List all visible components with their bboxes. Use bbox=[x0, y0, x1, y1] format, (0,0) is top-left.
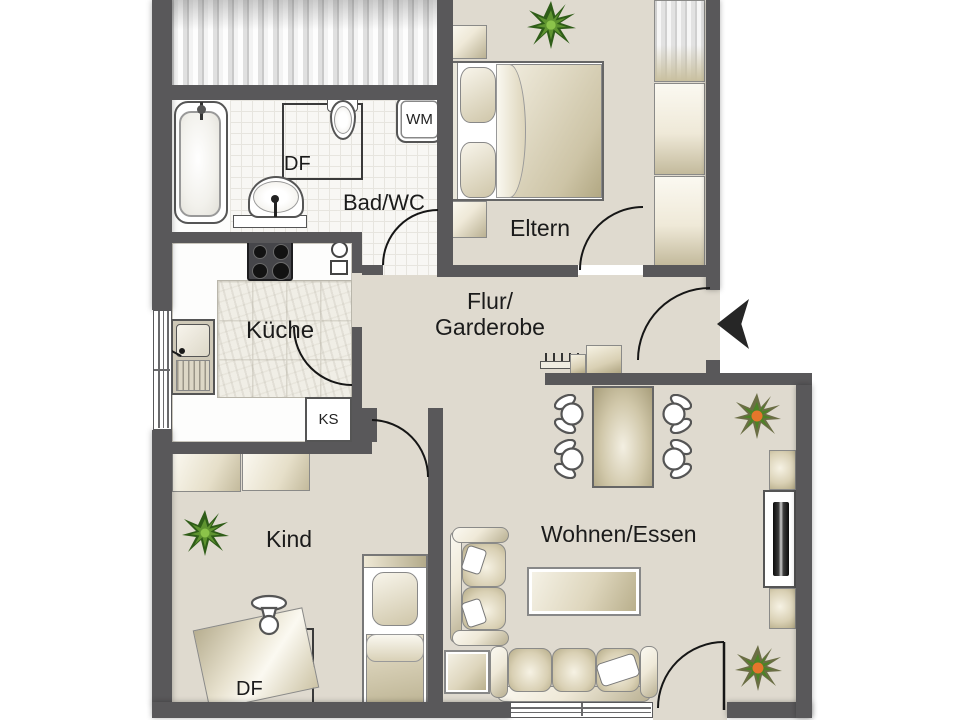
tv bbox=[773, 502, 789, 576]
dining-table bbox=[592, 386, 654, 488]
skylight-bathroom-label: DF bbox=[284, 153, 311, 176]
wall-bath-flur-stub bbox=[362, 265, 383, 275]
wardrobe-section bbox=[654, 176, 705, 266]
washbasin bbox=[233, 176, 307, 228]
room-label-bad: Bad/WC bbox=[343, 190, 425, 216]
room-label-flur: Flur/ Garderobe bbox=[410, 288, 570, 340]
cushion bbox=[552, 648, 596, 692]
window-wohnen-bottom bbox=[510, 702, 653, 718]
washbasin-tap-knob-icon bbox=[271, 195, 279, 203]
dining-chair bbox=[656, 394, 692, 434]
tv-cabinet bbox=[769, 450, 796, 490]
pillow bbox=[372, 572, 418, 626]
balcony-doorway-floor bbox=[653, 702, 727, 720]
shelf-unit bbox=[172, 451, 241, 492]
wall-eltern-bottom-left bbox=[451, 265, 578, 277]
wall-kind-wohnen bbox=[428, 408, 443, 702]
coat-rack bbox=[540, 345, 622, 375]
sofa bbox=[490, 644, 658, 702]
room-label-flur-line2: Garderobe bbox=[410, 314, 570, 340]
wall-kitchen-right-a bbox=[352, 232, 362, 273]
window-kitchen-left bbox=[153, 310, 172, 430]
wall-outer-right bbox=[796, 385, 812, 718]
wardrobe-sliding bbox=[654, 0, 705, 82]
shelf-unit bbox=[242, 451, 310, 491]
wall-bath-kitchen bbox=[172, 232, 352, 243]
fridge: KS bbox=[305, 397, 352, 442]
wall-kind-top bbox=[152, 442, 372, 454]
entry-doorway-floor bbox=[706, 290, 720, 360]
toilet bbox=[327, 95, 358, 141]
plant bbox=[181, 509, 229, 557]
kitchen-sink-unit bbox=[171, 319, 215, 395]
hob bbox=[247, 239, 293, 281]
room-label-kueche: Küche bbox=[246, 317, 314, 345]
nightstand bbox=[448, 25, 487, 59]
wall-entry-stub bbox=[706, 360, 720, 374]
wall-outer-left-top bbox=[152, 0, 172, 310]
skylight-kind-label: DF bbox=[236, 678, 263, 701]
room-label-kind: Kind bbox=[266, 526, 312, 553]
pillow bbox=[460, 67, 496, 123]
wall-kitchen-right-stub bbox=[352, 408, 377, 442]
single-bed bbox=[362, 554, 428, 709]
pillow bbox=[460, 142, 496, 198]
plant bbox=[733, 392, 781, 440]
loveseat bbox=[450, 527, 509, 646]
dining-chair bbox=[656, 439, 692, 479]
faucet-icon bbox=[179, 348, 185, 354]
wall-eltern-right-outer bbox=[706, 0, 720, 290]
kitchen-sink-round bbox=[330, 241, 350, 275]
bathtub-inner bbox=[179, 111, 221, 217]
wall-terrace-bath bbox=[152, 85, 453, 100]
dining-chair bbox=[554, 394, 590, 434]
desk-chair bbox=[248, 594, 290, 638]
cushion bbox=[508, 648, 552, 692]
wardrobe-section bbox=[654, 83, 705, 175]
room-label-eltern: Eltern bbox=[510, 215, 570, 242]
wall-flur-wohnen bbox=[545, 373, 812, 385]
tv-cabinet bbox=[769, 588, 796, 629]
passage-floor bbox=[428, 373, 545, 385]
wardrobe-shelf bbox=[570, 354, 586, 375]
coffee-table bbox=[527, 567, 641, 616]
plant bbox=[734, 644, 782, 692]
entrance-arrow-icon bbox=[717, 299, 749, 349]
room-label-wohnen: Wohnen/Essen bbox=[541, 521, 697, 548]
wardrobe-cabinet bbox=[586, 345, 622, 375]
wall-outer-left-bottom bbox=[152, 430, 172, 704]
roof-terrace-floor bbox=[172, 0, 437, 85]
room-label-flur-line1: Flur/ bbox=[410, 288, 570, 314]
bathtub bbox=[174, 101, 228, 224]
wall-outer-bottom-left bbox=[152, 702, 510, 718]
plant bbox=[526, 0, 576, 50]
nightstand bbox=[448, 201, 487, 238]
kitchen-doorway-floor bbox=[352, 273, 362, 327]
fridge-label: KS bbox=[318, 411, 338, 428]
tv-board bbox=[763, 490, 796, 588]
wall-eltern-bottom-right bbox=[643, 265, 720, 277]
wall-kitchen-right-b bbox=[352, 327, 362, 408]
bathtub-tap-knob-icon bbox=[197, 105, 206, 114]
dining-chair bbox=[554, 439, 590, 479]
double-bed bbox=[449, 61, 604, 201]
floor-plan: DF WM Bad/WC KS Küche Flur/ Garderobe bbox=[0, 0, 960, 720]
wall-eltern-left bbox=[437, 0, 453, 277]
washing-machine-label: WM bbox=[406, 111, 433, 128]
washing-machine: WM bbox=[396, 96, 443, 143]
side-table bbox=[444, 650, 490, 694]
